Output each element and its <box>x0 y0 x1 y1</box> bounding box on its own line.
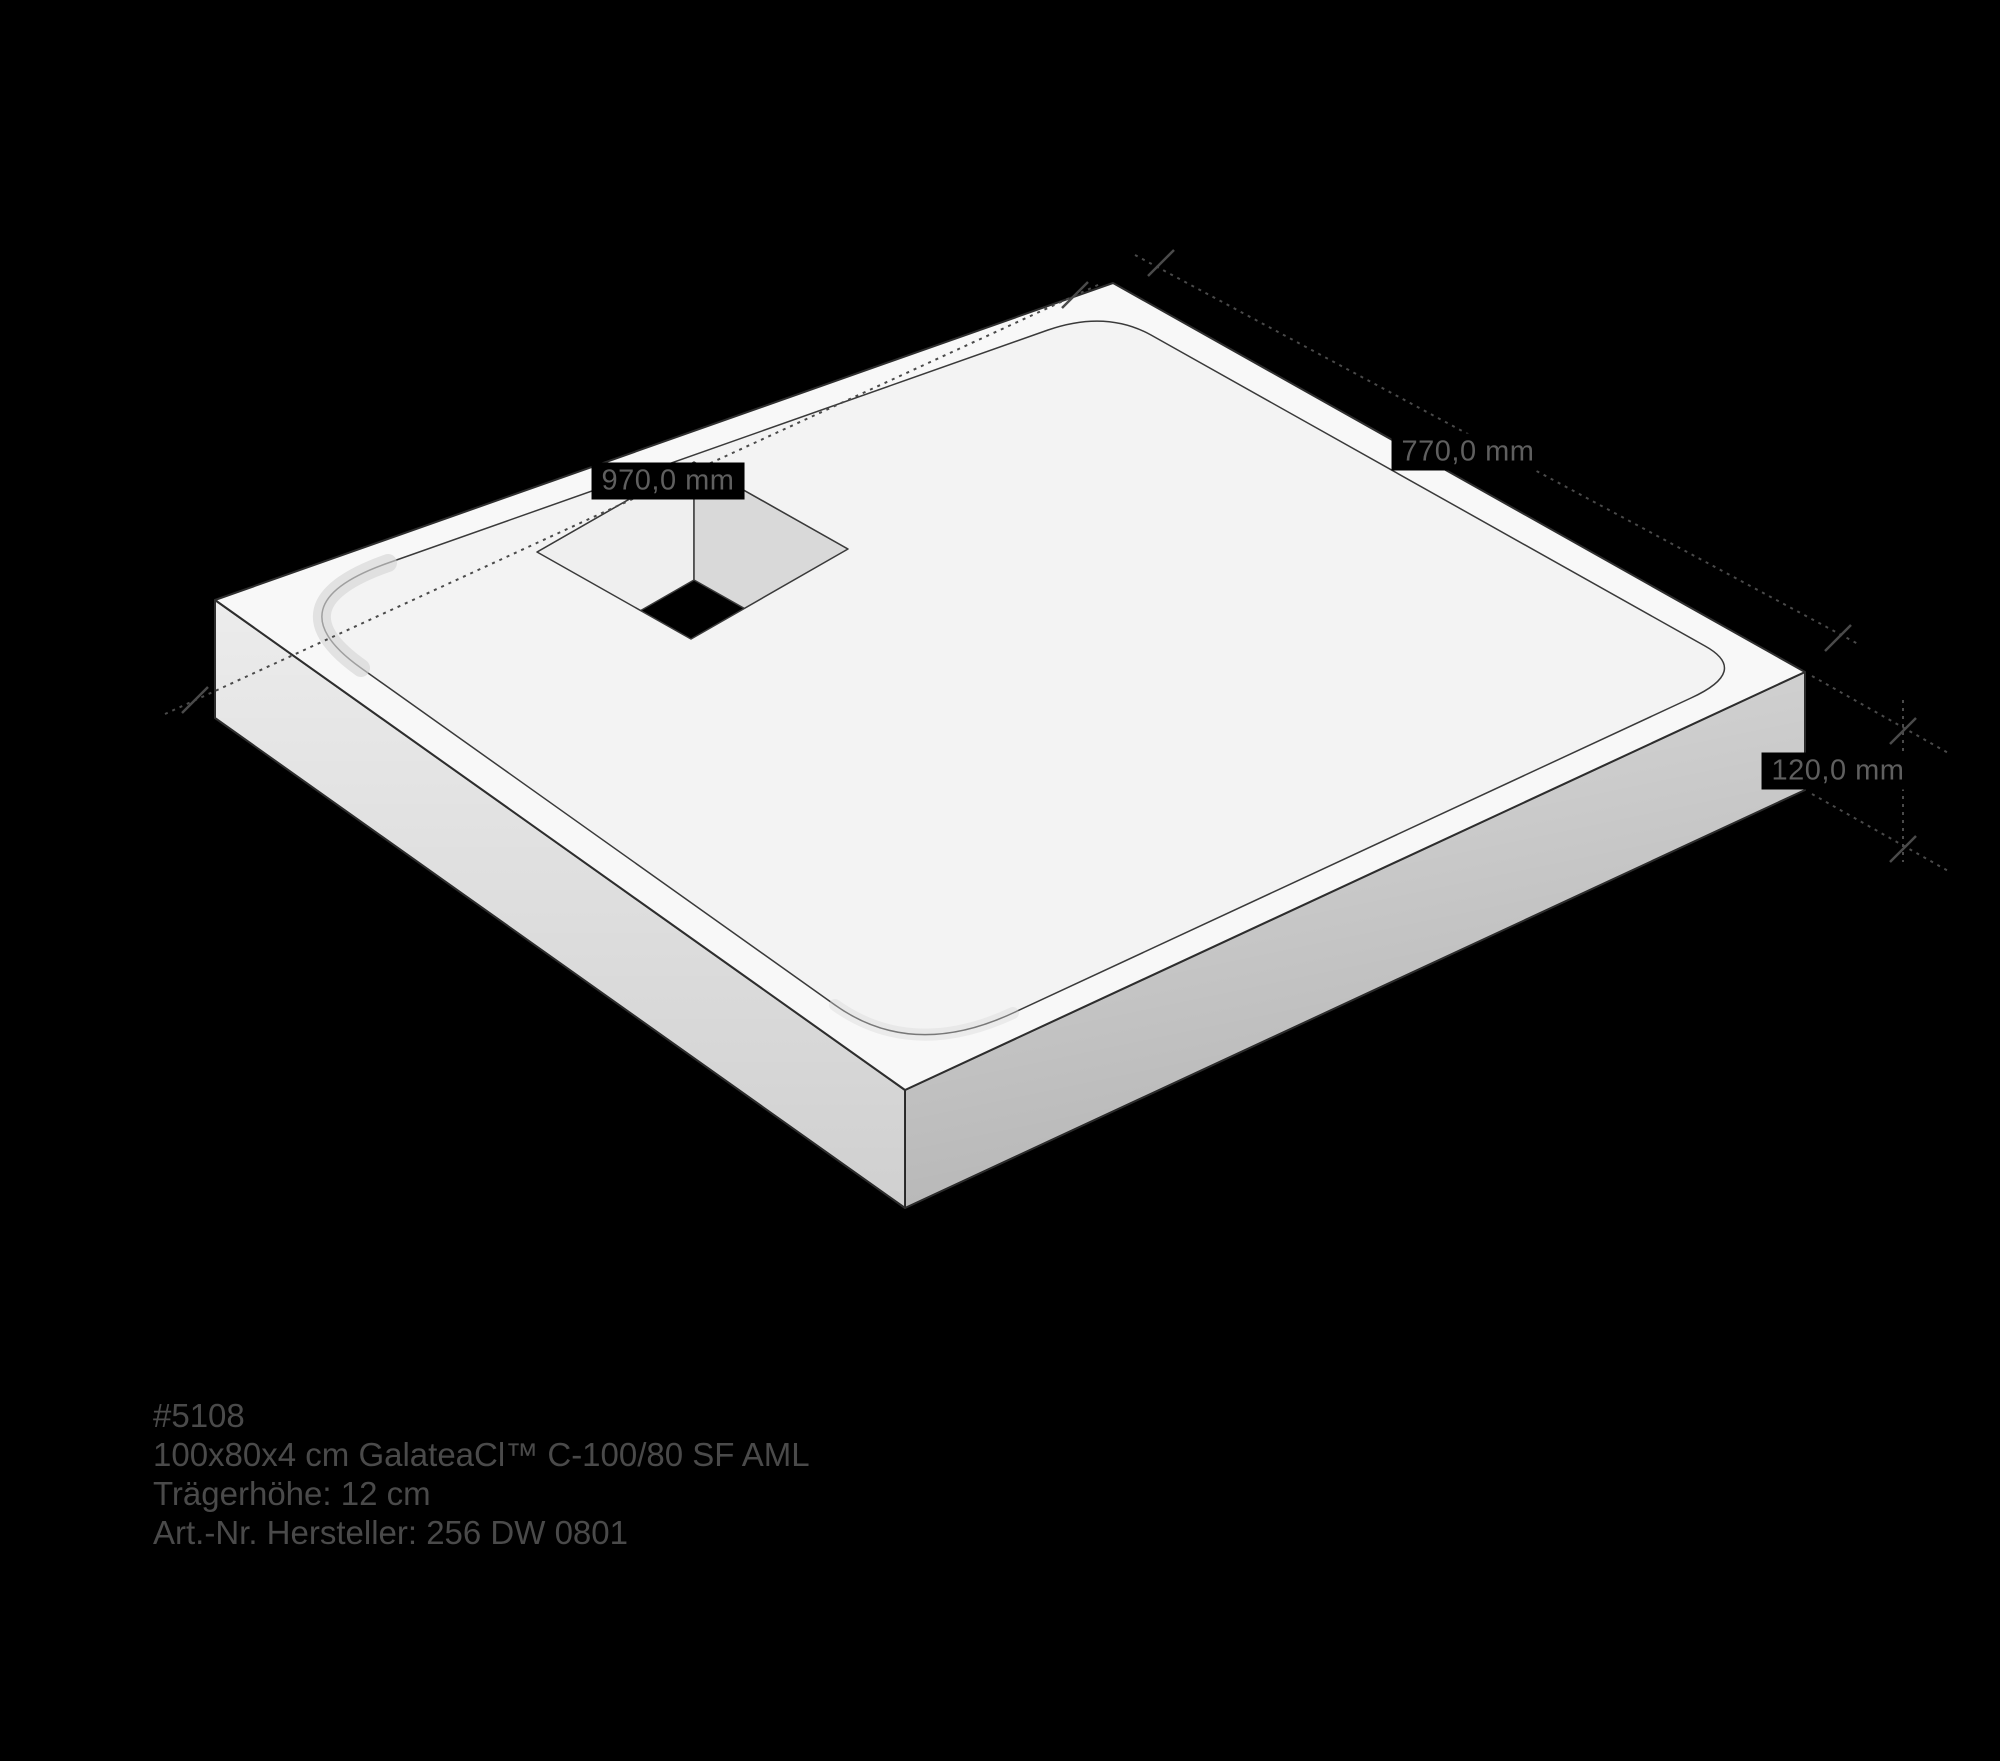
product-description: 100x80x4 cm GalateaCl™ C-100/80 SF AML <box>153 1435 810 1474</box>
article-number: #5108 <box>153 1396 810 1435</box>
dimension-label-height: 120,0 mm <box>1762 753 1915 790</box>
technical-drawing-page: 970,0 mm 770,0 mm 120,0 mm #5108 100x80x… <box>0 0 2000 1761</box>
dimension-label-inner-length: 970,0 mm <box>592 463 745 500</box>
carrier-height: Trägerhöhe: 12 cm <box>153 1474 810 1513</box>
manufacturer-article-number: Art.-Nr. Hersteller: 256 DW 0801 <box>153 1513 810 1552</box>
dimension-label-inner-width: 770,0 mm <box>1392 434 1545 471</box>
product-info-block: #5108 100x80x4 cm GalateaCl™ C-100/80 SF… <box>153 1396 810 1552</box>
